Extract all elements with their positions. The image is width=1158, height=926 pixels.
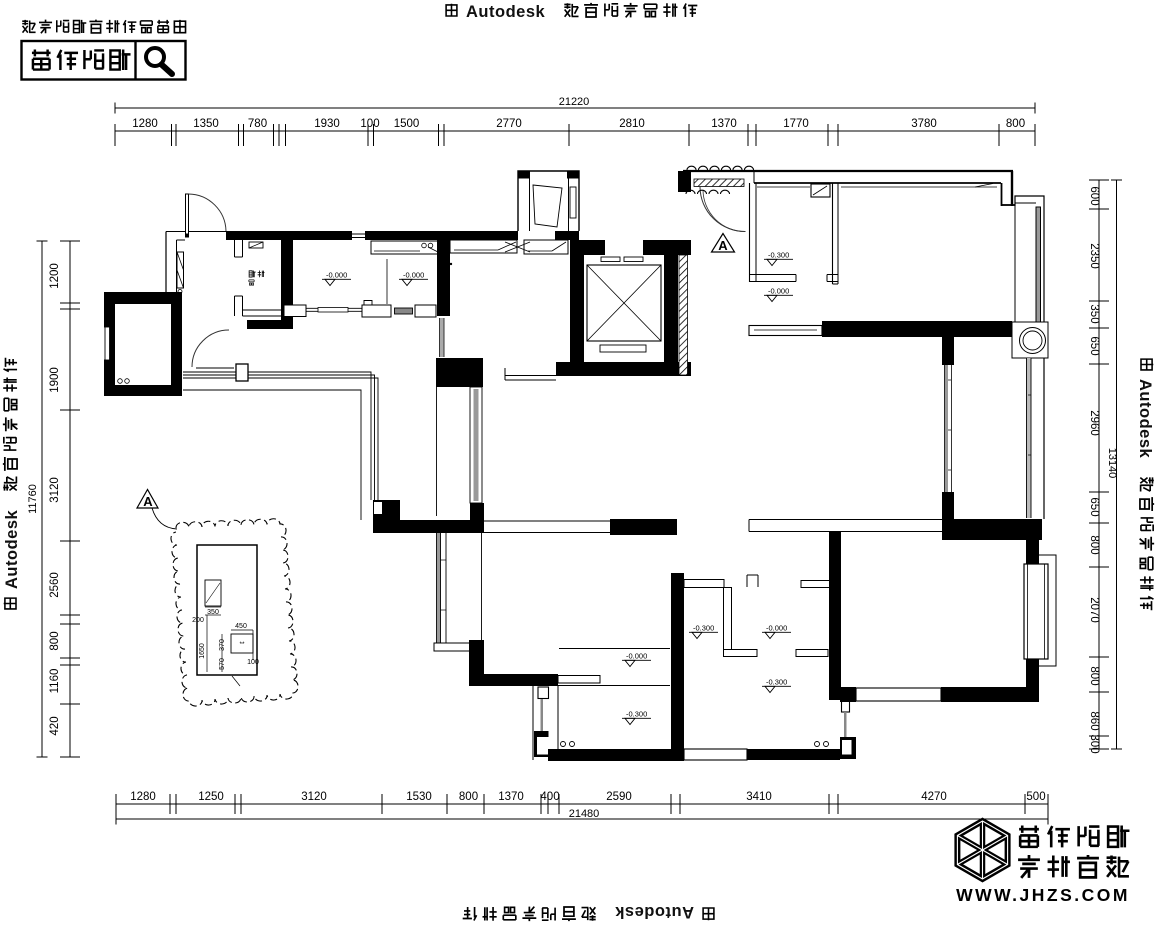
svg-text:300: 300 bbox=[1088, 734, 1100, 753]
svg-text:1530: 1530 bbox=[406, 791, 432, 803]
svg-text:100: 100 bbox=[247, 659, 259, 666]
svg-text:Autodesk: Autodesk bbox=[615, 903, 695, 921]
svg-text:21480: 21480 bbox=[569, 808, 600, 820]
svg-text:3120: 3120 bbox=[49, 477, 61, 503]
svg-text:1280: 1280 bbox=[130, 791, 156, 803]
svg-text:420: 420 bbox=[49, 716, 61, 735]
svg-text:WWW.JHZS.COM: WWW.JHZS.COM bbox=[956, 885, 1130, 905]
svg-text:800: 800 bbox=[459, 791, 478, 803]
svg-text:Autodesk: Autodesk bbox=[466, 3, 546, 21]
svg-text:11760: 11760 bbox=[27, 484, 39, 514]
svg-text:1650: 1650 bbox=[199, 643, 206, 659]
svg-text:860: 860 bbox=[1088, 711, 1100, 730]
svg-text:800: 800 bbox=[1088, 535, 1100, 554]
svg-text:800: 800 bbox=[1088, 666, 1100, 685]
svg-text:2960: 2960 bbox=[1088, 410, 1100, 436]
svg-text:780: 780 bbox=[248, 118, 267, 130]
svg-text:1370: 1370 bbox=[711, 118, 737, 130]
svg-text:3120: 3120 bbox=[301, 791, 327, 803]
svg-text:A: A bbox=[718, 238, 728, 253]
svg-text:1200: 1200 bbox=[49, 263, 61, 289]
svg-text:570: 570 bbox=[219, 658, 226, 670]
svg-text:A: A bbox=[143, 494, 153, 509]
svg-text:3410: 3410 bbox=[746, 791, 772, 803]
svg-text:13140: 13140 bbox=[1106, 448, 1118, 479]
svg-text:2590: 2590 bbox=[606, 791, 632, 803]
svg-text:650: 650 bbox=[1088, 336, 1100, 355]
svg-text:4270: 4270 bbox=[921, 791, 947, 803]
svg-text:1930: 1930 bbox=[314, 118, 340, 130]
svg-text:1250: 1250 bbox=[198, 791, 224, 803]
svg-text:1370: 1370 bbox=[498, 791, 524, 803]
svg-text:3780: 3780 bbox=[911, 118, 937, 130]
svg-text:2810: 2810 bbox=[619, 118, 645, 130]
svg-text:1500: 1500 bbox=[394, 118, 420, 130]
svg-text:1900: 1900 bbox=[49, 367, 61, 393]
svg-text:21220: 21220 bbox=[559, 96, 590, 108]
svg-text:2770: 2770 bbox=[496, 118, 522, 130]
svg-text:1160: 1160 bbox=[49, 669, 61, 694]
svg-text:450: 450 bbox=[235, 623, 247, 630]
svg-text:500: 500 bbox=[1026, 791, 1045, 803]
svg-text:1280: 1280 bbox=[132, 118, 158, 130]
svg-text:2350: 2350 bbox=[1088, 243, 1100, 269]
svg-text:600: 600 bbox=[1088, 186, 1100, 205]
svg-text:800: 800 bbox=[49, 631, 61, 650]
svg-text:1770: 1770 bbox=[783, 118, 809, 130]
svg-text:**: ** bbox=[239, 641, 245, 648]
svg-text:650: 650 bbox=[1088, 497, 1100, 516]
svg-text:Autodesk: Autodesk bbox=[1136, 379, 1154, 459]
svg-text:400: 400 bbox=[540, 791, 559, 803]
svg-text:Autodesk: Autodesk bbox=[3, 510, 21, 590]
svg-text:2070: 2070 bbox=[1088, 597, 1100, 623]
svg-text:370: 370 bbox=[219, 639, 226, 651]
svg-text:100: 100 bbox=[360, 118, 379, 130]
svg-text:1350: 1350 bbox=[193, 118, 219, 130]
svg-text:200: 200 bbox=[192, 617, 204, 624]
svg-text:800: 800 bbox=[1006, 118, 1025, 130]
svg-text:2560: 2560 bbox=[49, 572, 61, 598]
svg-text:350: 350 bbox=[1088, 304, 1100, 323]
